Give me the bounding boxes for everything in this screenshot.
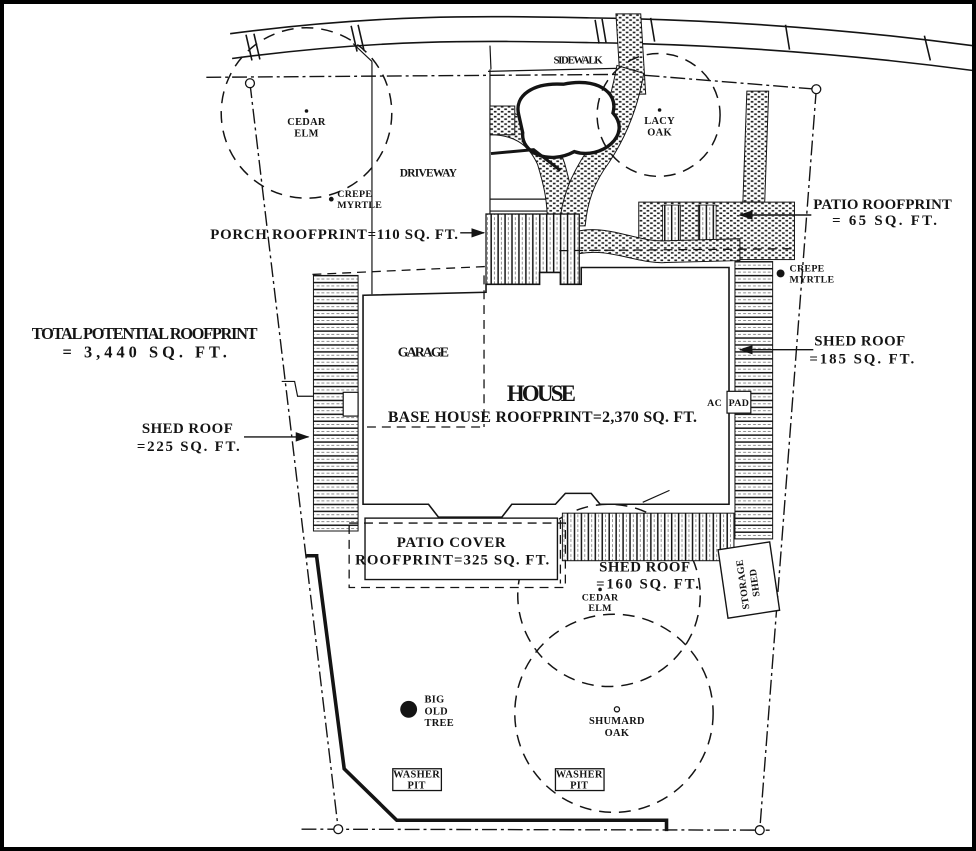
- cedar-elm-bottom-label-line1: CEDAR: [582, 592, 619, 603]
- washer-pit-label-line2: PIT: [570, 781, 588, 792]
- curb-upper-line: [230, 17, 972, 46]
- driveway-apron-flare: [353, 44, 491, 70]
- shed-roof-right-label-line1: SHED ROOF: [814, 334, 905, 350]
- gate-box-on-left-strip: [343, 392, 358, 416]
- crepe-myrtle-left-label-line2: MYRTLE: [337, 200, 382, 211]
- planting-bed-outline: [518, 82, 619, 157]
- lacy-oak-trunk-dot: [658, 108, 662, 112]
- cedar-elm-top-label-line2: ELM: [294, 129, 319, 140]
- washer-pit-label-line1: WASHER: [556, 770, 603, 781]
- driveway-label: DRIVEWAY: [400, 167, 458, 179]
- shumard-oak-label-line1: SHUMARD: [589, 716, 645, 727]
- sidewalk-label: SIDEWALK: [553, 54, 603, 66]
- corner-marker: [812, 85, 821, 94]
- corner-marker: [246, 79, 255, 88]
- ac-pad-label-line1: AC: [707, 398, 722, 409]
- big-old-tree-label-line2: OLD: [425, 706, 448, 717]
- lacy-oak-label-line2: OAK: [647, 128, 672, 139]
- patio-cover-label-line1: PATIO COVER: [397, 535, 506, 551]
- big-old-tree-trunk: [400, 701, 417, 718]
- total-roofprint-label-line1: TOTAL POTENTIAL ROOFPRINT: [32, 324, 258, 343]
- crepe-myrtle-right-label-line1: CREPE: [790, 263, 825, 274]
- roofprint-dashed-top: [312, 267, 486, 275]
- house-label: HOUSE: [507, 381, 576, 406]
- site-plan-drawing: WASHER PIT WASHER PIT SIDEWALK DRIVEWAY …: [4, 4, 972, 847]
- shed-roof-strip-bottom: [562, 513, 734, 561]
- property-line-rear: [302, 829, 770, 830]
- cedar-elm-top-trunk-dot: [305, 109, 309, 113]
- shed-roof-left-label-line1: SHED ROOF: [142, 421, 233, 437]
- washer-pit-2: WASHER PIT: [555, 769, 604, 792]
- washer-pit-label-line1: WASHER: [393, 770, 440, 781]
- front-yard-top-edge: [488, 68, 616, 71]
- cedar-elm-top-canopy: [221, 28, 392, 198]
- shed-roof-bottom-label-line2: =160 SQ. FT.: [596, 576, 699, 592]
- corner-marker: [334, 825, 343, 834]
- shumard-oak-trunk: [614, 707, 619, 712]
- patio-roofprint-label-line1: PATIO ROOFPRINT: [813, 197, 952, 213]
- walk-stub-at-driveway: [490, 106, 515, 135]
- shed-roof-right-label-line2: =185 SQ. FT.: [809, 352, 914, 368]
- site-plan-sheet: WASHER PIT WASHER PIT SIDEWALK DRIVEWAY …: [0, 0, 976, 851]
- cedar-elm-top-label-line1: CEDAR: [287, 117, 326, 128]
- porch-deck: [486, 214, 579, 284]
- crepe-myrtle-right-dot: [777, 269, 785, 277]
- ac-pad-label-line2: PAD: [729, 398, 750, 409]
- cedar-elm-bottom-label-line2: ELM: [588, 603, 612, 614]
- garage-label: GARAGE: [398, 346, 450, 361]
- patio-cover-label-line2: ROOFPRINT=325 SQ. FT.: [355, 553, 549, 569]
- porch-roofprint-label: PORCH ROOFPRINT=110 SQ. FT.: [210, 227, 458, 243]
- big-old-tree-label-line1: BIG: [425, 694, 445, 705]
- total-roofprint-label-line2: = 3,440 SQ. FT.: [63, 343, 228, 362]
- crepe-myrtle-right-label-line2: MYRTLE: [790, 274, 835, 285]
- lacy-oak-label-line1: LACY: [644, 116, 675, 127]
- corner-marker: [755, 826, 764, 835]
- big-old-tree-label-line3: TREE: [425, 718, 455, 729]
- crepe-myrtle-left-dot: [329, 197, 334, 202]
- shed-roof-bottom-label-line1: SHED ROOF: [599, 560, 690, 576]
- property-line-front: [206, 74, 816, 89]
- washer-pit-label-line2: PIT: [407, 781, 425, 792]
- shumard-oak-canopy: [515, 614, 713, 812]
- side-walk-band-right: [743, 91, 769, 202]
- crepe-myrtle-left-label-line1: CREPE: [337, 189, 372, 200]
- patio-roofprint-label-line2: = 65 SQ. FT.: [832, 213, 937, 229]
- shumard-oak-label-line2: OAK: [605, 728, 630, 739]
- base-house-roofprint-label: BASE HOUSE ROOFPRINT=2,370 SQ. FT.: [388, 409, 697, 426]
- washer-pit-1: WASHER PIT: [393, 769, 442, 792]
- shed-roof-left-label-line2: =225 SQ. FT.: [137, 439, 240, 455]
